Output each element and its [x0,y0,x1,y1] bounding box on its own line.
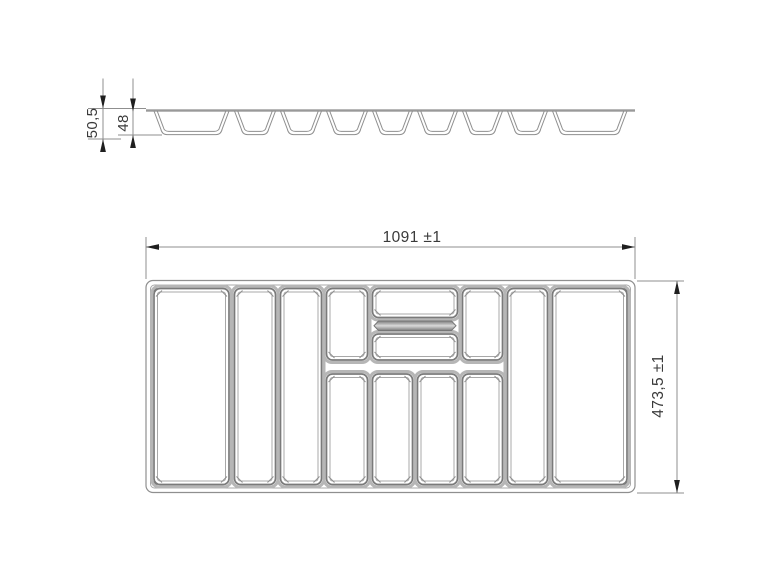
dimension-arrow [130,135,136,148]
dimension-arrow [622,244,635,250]
compartment-center-middle [370,332,460,363]
section-trough [463,111,503,135]
compartment-col-7-bottom [460,372,505,488]
section-trough [373,111,413,135]
section-trough [418,111,458,135]
compartment-col-7-top [460,286,505,363]
dimension-arrow [674,281,680,294]
section-trough [508,111,548,135]
section-view [146,109,635,134]
compartment-col-6-bottom [415,372,460,488]
compartment-col-8 [505,286,550,487]
dim-width-label: 1091 ±1 [383,229,442,246]
technical-drawing-canvas: 1091 ±1 473,5 ±1 50,5 48 [0,0,770,578]
section-trough [235,111,276,135]
section-trough [553,111,628,135]
center-divider-bar [374,321,456,331]
plan-view [146,281,635,493]
compartment-col-5-bottom [370,372,415,488]
compartment-col-4-top [324,286,370,363]
compartment-col-4-bottom [324,372,370,488]
compartment-col-3 [278,286,324,487]
section-trough [327,111,368,135]
tray-top-edge-line [146,109,635,111]
compartment-left-large [152,286,232,487]
dimension-arrow [146,244,159,250]
section-trough [281,111,322,135]
compartment-center-top [370,286,460,320]
dim-section-depth-label: 48 [115,114,132,132]
compartment-col-2 [232,286,278,487]
dim-height-label: 473,5 ±1 [650,354,667,417]
dimension-arrow [130,99,136,112]
dimension-arrow [100,139,106,152]
compartment-right-large [550,286,630,487]
dim-section-height-label: 50,5 [84,108,101,139]
dimension-sec-depth [118,79,162,149]
dimension-arrow [100,96,106,109]
section-trough [154,111,229,135]
dimension-arrow [674,480,680,493]
drawing-page: 1091 ±1 473,5 ±1 50,5 48 [0,0,770,578]
